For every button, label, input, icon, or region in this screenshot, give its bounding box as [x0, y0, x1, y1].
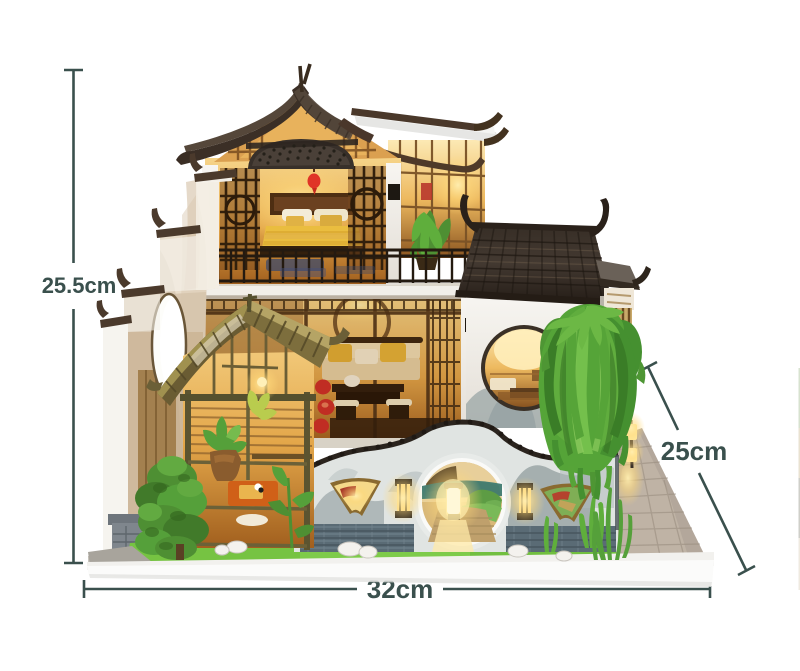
svg-text:25cm: 25cm	[661, 436, 728, 466]
svg-text:25.5cm: 25.5cm	[42, 273, 117, 298]
